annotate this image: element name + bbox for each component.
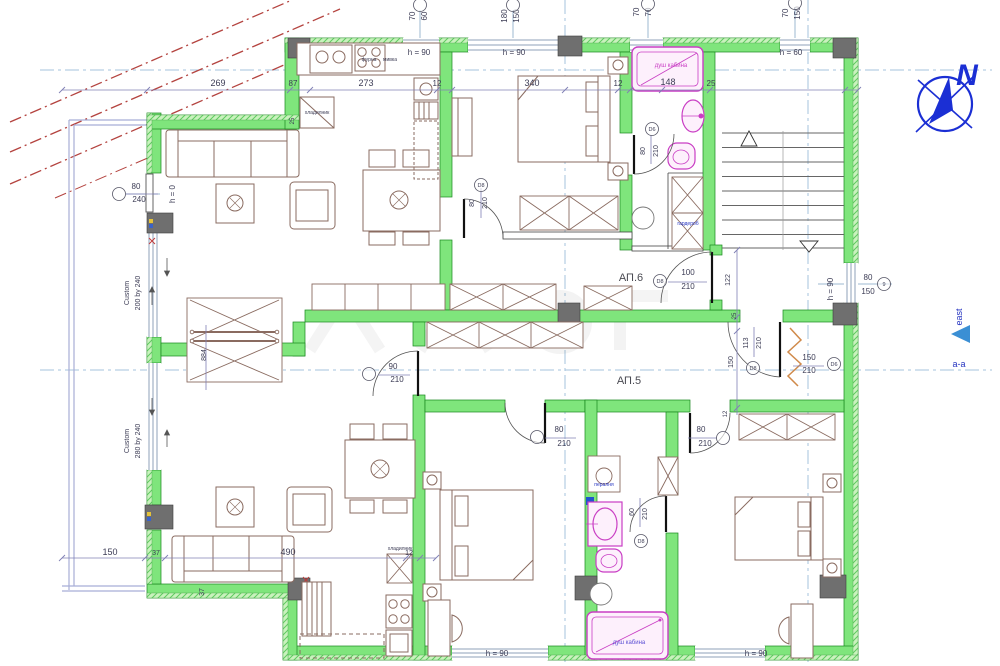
dim-label: h = 90 <box>503 48 526 57</box>
floor-plan-drawing: 706018015070707015026987273123401214825h… <box>0 0 1000 666</box>
dim-label: 12 <box>614 79 623 88</box>
wardrobe <box>450 284 556 310</box>
sink <box>682 100 704 132</box>
door-tag-bubble: D6 <box>828 358 841 371</box>
dim-label: 150 <box>861 287 875 296</box>
door-tag-bubble: D8 <box>747 362 760 375</box>
grid-bubble <box>717 432 730 445</box>
north-arrow <box>929 77 953 124</box>
dim-label: 490 <box>280 547 295 557</box>
dim-label: 37 <box>152 550 160 557</box>
boiler <box>632 207 654 229</box>
fridge-label: хладилник <box>305 110 330 116</box>
door-tag-label: 9 <box>882 282 885 288</box>
door-tag-bubble: D8 <box>635 535 648 548</box>
door-tag-bubble: D8 <box>475 179 488 192</box>
coffee-table <box>216 487 254 527</box>
dim-label: h = 90 <box>745 649 768 658</box>
dim-label: 210 <box>482 197 489 209</box>
boiler <box>590 583 612 605</box>
dim-label: 122 <box>725 274 732 286</box>
shower-cabin-label: душ кабина <box>655 63 688 69</box>
dim-label: 210 <box>390 375 404 384</box>
vent-shaft <box>658 457 678 495</box>
bed <box>518 76 610 162</box>
grid-bubble <box>113 188 126 201</box>
dining-table <box>345 424 415 513</box>
dim-label: 210 <box>653 145 660 157</box>
coffee-table <box>216 184 254 223</box>
dim-label: 340 <box>524 78 539 88</box>
dim-label: 12 <box>723 410 729 417</box>
dim-label: 87 <box>289 79 298 88</box>
dim-label: h = 90 <box>486 649 509 658</box>
east-label: east <box>954 308 964 326</box>
section-marker-east <box>951 325 970 343</box>
balcony-door <box>146 174 153 212</box>
nightstand <box>608 57 628 74</box>
sofa <box>166 130 299 177</box>
nightstand <box>423 584 441 601</box>
dim-label: 60 <box>420 11 429 20</box>
dim-label: 884 <box>201 349 208 361</box>
zigzag-symbol <box>788 328 801 386</box>
door-tag-label: D8 <box>656 279 663 285</box>
stove <box>386 595 412 628</box>
dim-label: 210 <box>557 439 571 448</box>
dim-label: 280 by 240 <box>135 424 142 459</box>
kitchen-sink <box>386 630 412 656</box>
door-tag-bubble: D8 <box>654 275 667 288</box>
dining-table <box>363 150 440 245</box>
nightstand <box>823 474 841 492</box>
dim-label: h = 90 <box>826 277 835 300</box>
bed <box>440 490 533 580</box>
door-tag-label: D8 <box>637 539 644 545</box>
north-letter: N <box>956 59 979 92</box>
cabinet-row <box>312 284 445 310</box>
dim-label: 25 <box>707 79 716 88</box>
dim-label: h = 60 <box>780 48 803 57</box>
dim-label: 25 <box>732 312 738 319</box>
grid-bubble <box>414 0 427 12</box>
dim-label: 70 <box>408 11 417 20</box>
grid-bubble <box>531 431 544 444</box>
grid-bubble <box>363 368 376 381</box>
dim-label: 269 <box>210 78 225 88</box>
dim-label: 150 <box>102 547 117 557</box>
kitchen-cupboard <box>302 582 331 636</box>
fridge-label: хладилник <box>388 546 413 552</box>
dim-label: 113 <box>743 337 750 348</box>
desk <box>452 98 472 156</box>
dim-label: 80 <box>864 273 873 282</box>
dim-label: 210 <box>802 366 816 375</box>
nightstand <box>823 559 841 577</box>
sink-label: мивка <box>383 57 397 63</box>
stair-down-arrow <box>800 241 818 252</box>
dim-label: Custom <box>124 281 131 305</box>
dim-label: h = 0 <box>168 184 177 203</box>
dim-label: 80 <box>132 182 141 191</box>
sink <box>586 502 622 546</box>
armchair <box>287 487 332 532</box>
wardrobe <box>584 286 632 310</box>
bed <box>735 497 823 560</box>
dim-label: 150 <box>728 356 735 368</box>
dim-label: 60 <box>629 508 636 516</box>
washing-machine-label: пералня <box>594 482 614 488</box>
door-tag-label: D6 <box>830 362 837 368</box>
door-tag-bubble: D6 <box>646 123 659 136</box>
dim-label: 273 <box>358 78 373 88</box>
dim-label: 12 <box>433 79 442 88</box>
dim-label: 210 <box>681 282 695 291</box>
dim-label: h = 90 <box>408 48 431 57</box>
dim-label: 80 <box>640 147 647 155</box>
dim-label: 70 <box>781 8 790 17</box>
nightstand <box>423 472 441 489</box>
dim-label: 150 <box>802 353 816 362</box>
dim-label: 80 <box>697 425 706 434</box>
wardrobe <box>739 414 835 440</box>
grid-bubble <box>507 0 520 12</box>
wardrobe <box>520 196 618 230</box>
wardrobe <box>672 177 703 249</box>
door <box>373 351 418 396</box>
dim-label: 210 <box>698 439 712 448</box>
dim-label: 70 <box>632 7 641 16</box>
apartment-5-label: АП.5 <box>617 375 641 387</box>
wardrobe <box>427 322 583 348</box>
oven-label: фурна <box>362 57 377 63</box>
dim-label: Custom <box>124 429 131 453</box>
door-tag-label: D8 <box>477 183 484 189</box>
dim-label: 200 by 240 <box>135 276 142 311</box>
dim-label: 80 <box>469 199 476 207</box>
section-label: а-а <box>952 359 965 369</box>
shower-cabin <box>587 612 668 659</box>
staircase <box>722 131 844 252</box>
grid-bubble <box>642 0 655 11</box>
door-tag-label: D6 <box>648 127 655 133</box>
dim-label: 80 <box>555 425 564 434</box>
dim-label: 25 <box>290 117 296 124</box>
grid-bubble <box>789 0 802 10</box>
wardrobe-label: гардероб <box>677 221 698 227</box>
door-tag-label: D8 <box>749 366 756 372</box>
floor-plan-page: 706018015070707015026987273123401214825h… <box>0 0 1000 666</box>
dim-label: 210 <box>756 337 763 349</box>
east-triangle-icon <box>951 325 970 343</box>
dim-label: 100 <box>681 268 695 277</box>
dim-label: 210 <box>642 508 649 520</box>
dim-label: 180 <box>500 9 509 23</box>
shower-cabin-label: душ кабина <box>613 640 646 646</box>
sofa <box>172 536 294 582</box>
armchair <box>290 182 335 229</box>
toilet <box>596 549 622 572</box>
dim-label: 90 <box>389 362 398 371</box>
door <box>661 252 712 303</box>
dim-label: 148 <box>660 77 675 87</box>
walk-in-closet <box>187 298 282 382</box>
nightstand <box>608 163 628 180</box>
dim-label: 240 <box>132 195 146 204</box>
door-tag-bubble: 9 <box>878 278 891 291</box>
apartment-6-label: АП.6 <box>619 272 643 284</box>
dim-label: 37 <box>199 588 206 596</box>
